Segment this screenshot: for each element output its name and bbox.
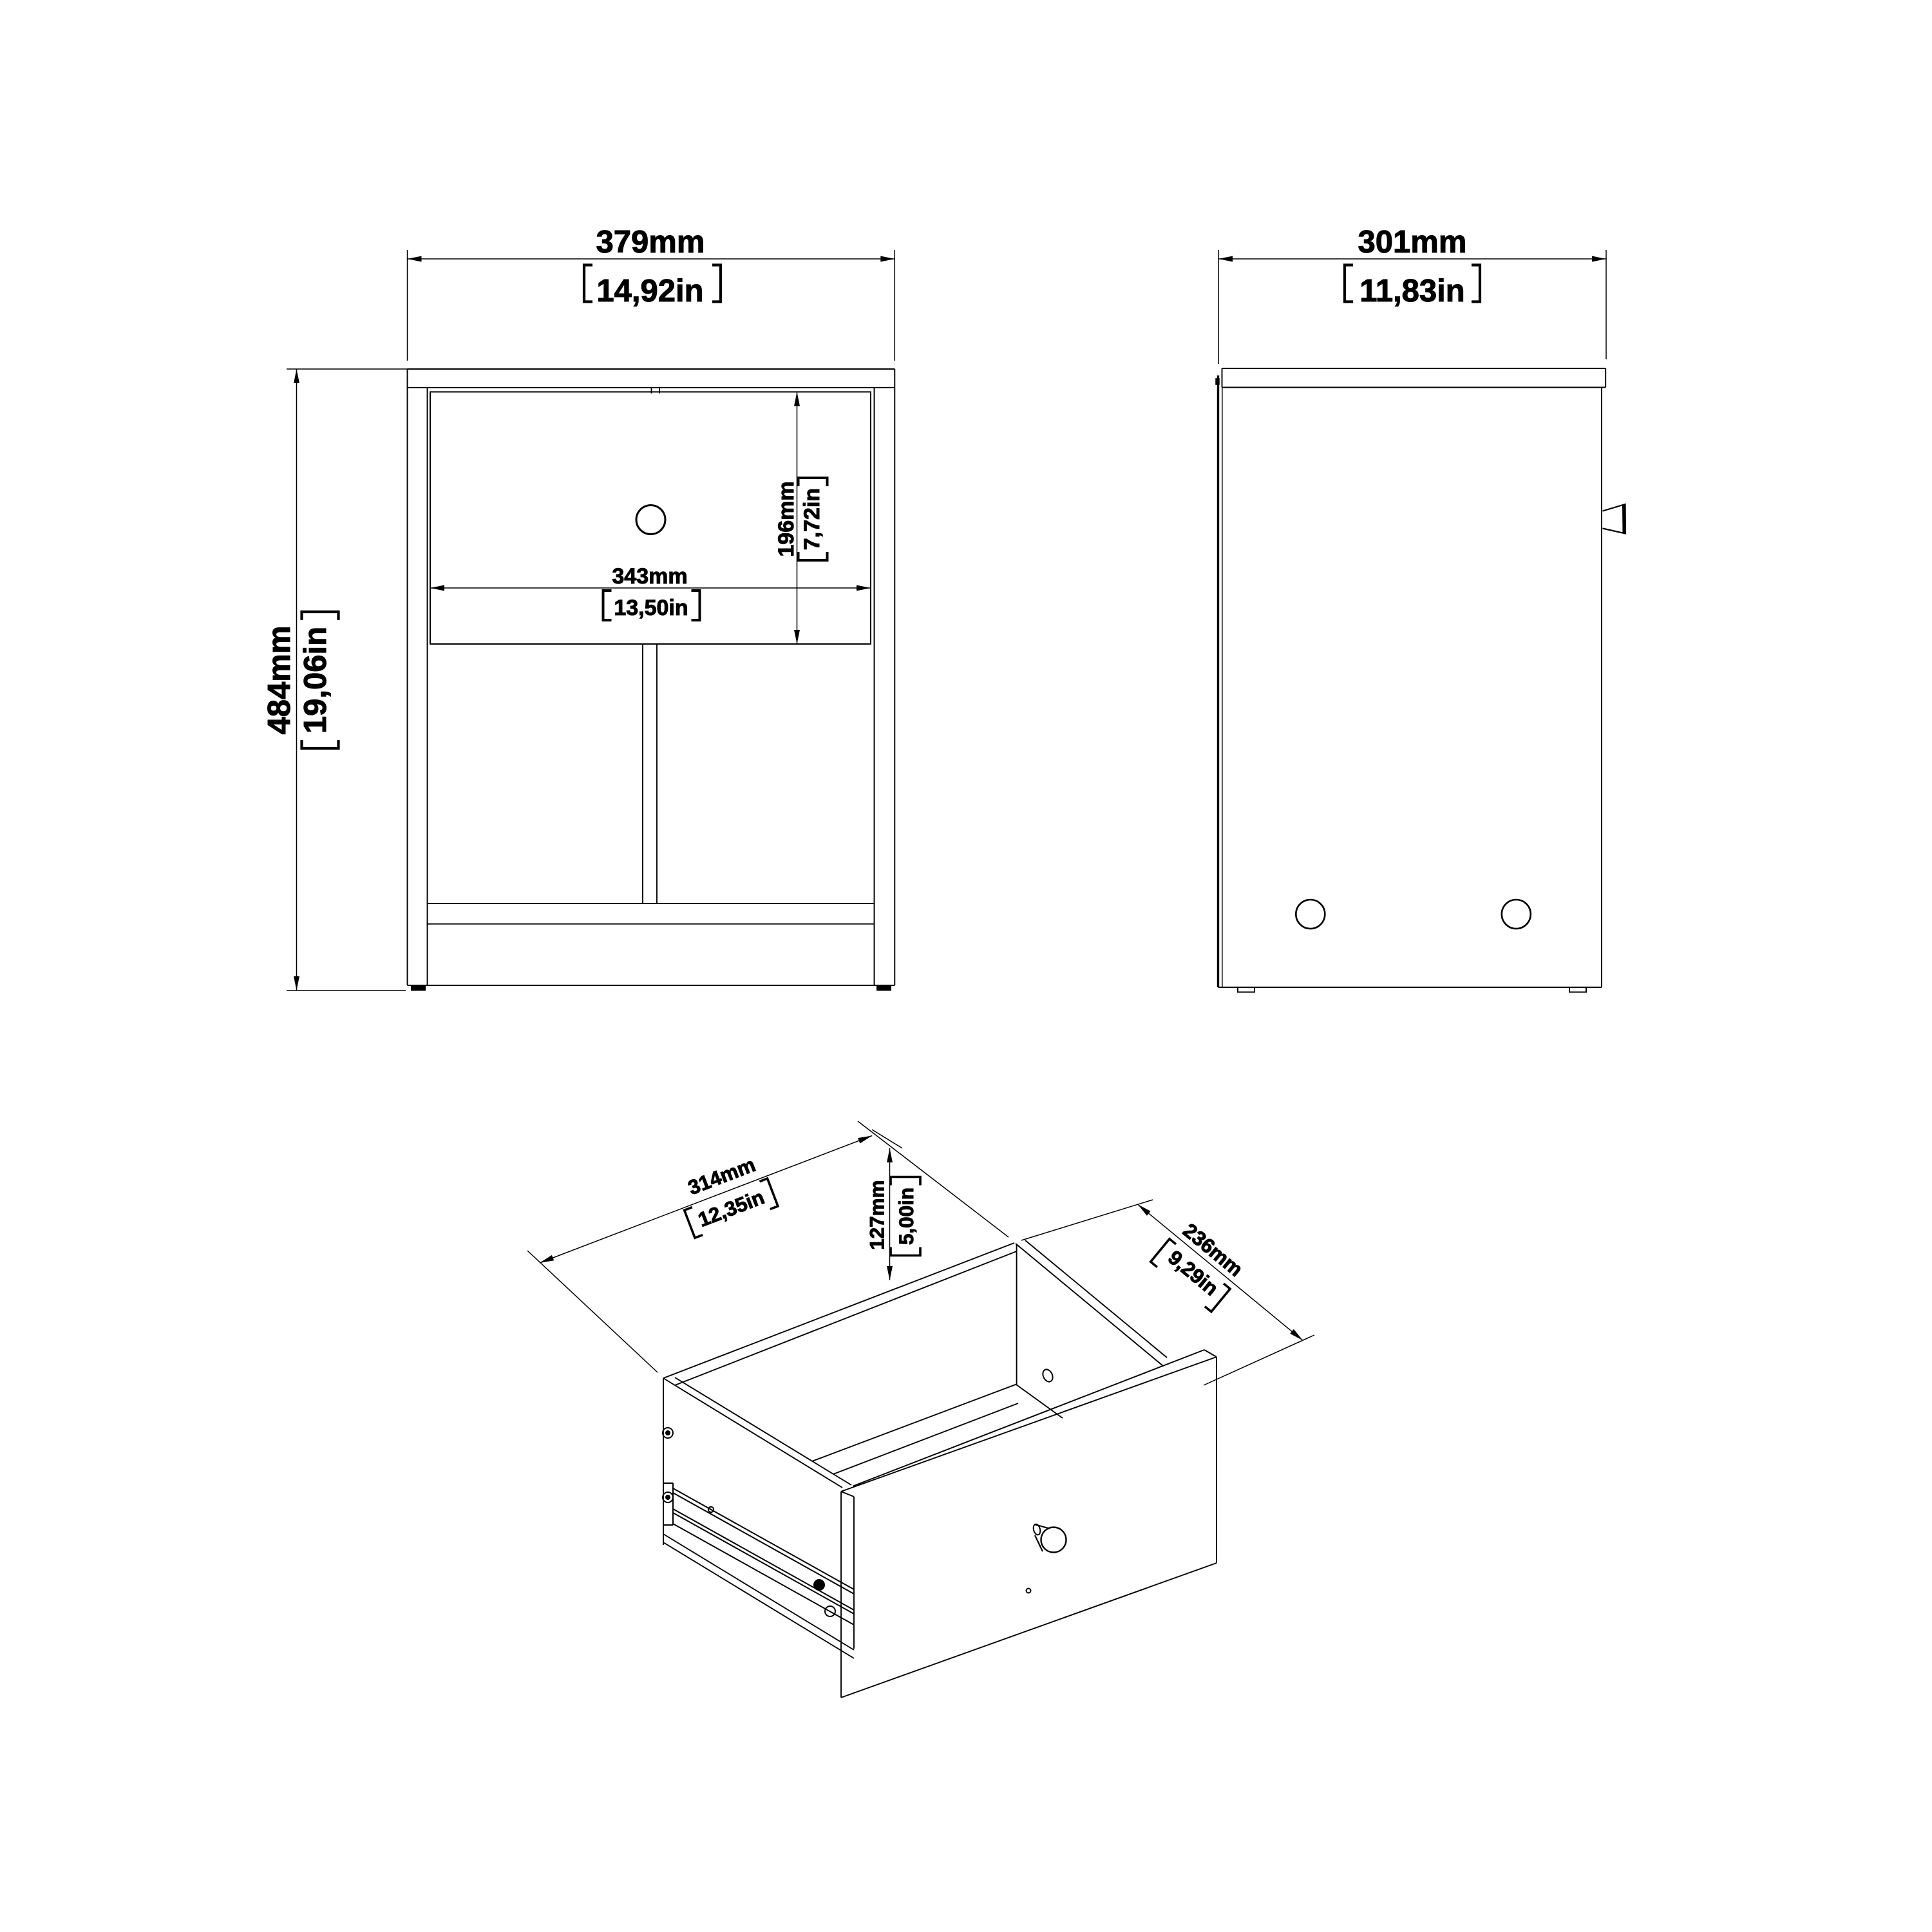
svg-text:196mm: 196mm <box>774 481 799 556</box>
svg-text:7,72in: 7,72in <box>800 488 824 550</box>
svg-text:14,92in: 14,92in <box>596 274 703 308</box>
svg-text:127mm: 127mm <box>866 1180 889 1250</box>
svg-text:379mm: 379mm <box>596 225 705 260</box>
svg-text:484mm: 484mm <box>262 626 297 735</box>
svg-text:301mm: 301mm <box>1358 225 1467 260</box>
svg-text:13,50in: 13,50in <box>614 596 688 620</box>
svg-text:343mm: 343mm <box>612 564 687 589</box>
svg-text:19,06in: 19,06in <box>298 627 333 734</box>
svg-text:5,00in: 5,00in <box>895 1188 918 1245</box>
svg-text:11,83in: 11,83in <box>1359 274 1464 308</box>
